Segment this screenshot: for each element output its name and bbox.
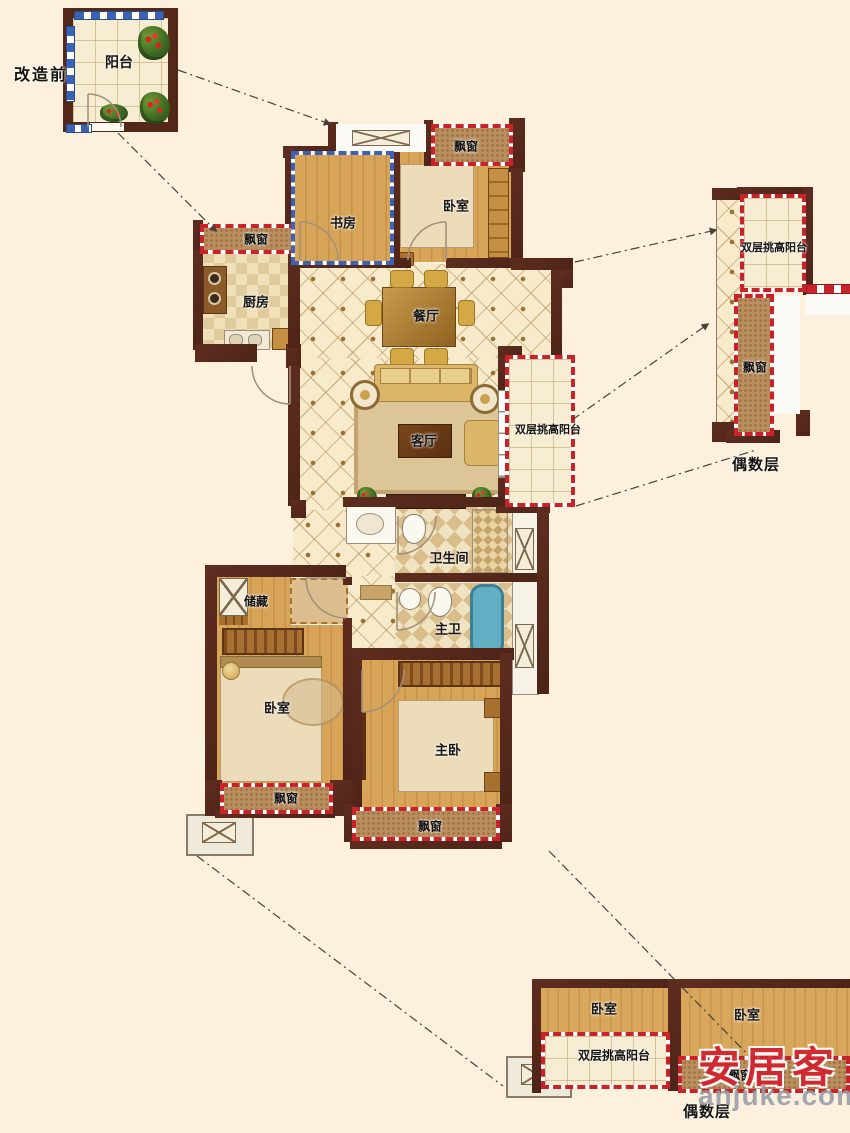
before-renovation-label: 改造前: [14, 61, 68, 85]
balcony-window-bottom: [66, 124, 92, 133]
balcony-before-label: 阳台: [105, 52, 133, 72]
bottom-bedroom-right-label: 卧室: [734, 1005, 760, 1024]
ac-ledge-x: [202, 822, 236, 843]
basin: [399, 588, 421, 610]
north-window-x: [352, 130, 410, 146]
wardrobe-master: [398, 661, 502, 687]
watermark-site: anjuke.com: [698, 1080, 850, 1112]
right-balcony-label: 双层挑高阳台: [741, 239, 807, 255]
living-label: 客厅: [411, 431, 437, 450]
duct-box: [515, 624, 534, 668]
bottom-balcony-label: 双层挑高阳台: [578, 1047, 650, 1064]
bay-west-label: 飘窗: [274, 790, 298, 807]
toilet: [402, 514, 426, 544]
right-unit-ledge: [774, 296, 800, 414]
side-table: [350, 380, 380, 410]
dining-chair: [424, 270, 448, 288]
bedroom-north-label: 卧室: [443, 196, 469, 215]
armchair: [464, 420, 502, 466]
plant-icon: [100, 104, 128, 122]
floorplan-canvas: 阳台 改造前: [0, 0, 850, 1133]
bedroom-north-wardrobe: [488, 168, 509, 258]
dining-label: 餐厅: [413, 306, 439, 325]
shower-area: [472, 509, 508, 573]
bottom-bedroom-left-label: 卧室: [591, 999, 617, 1018]
bay-master-label: 飘窗: [418, 818, 442, 835]
balcony-window-top: [74, 11, 164, 20]
even-floor-right-label: 偶数层: [732, 454, 780, 475]
bedside-lamp: [222, 662, 240, 680]
plant-icon: [140, 92, 170, 124]
stove-burner: [208, 292, 221, 305]
bay-kitchen-label: 飘窗: [244, 231, 268, 248]
floor-hatch: [290, 578, 348, 624]
right-unit-bay-extension: [806, 284, 850, 294]
balcony-door-gap: [90, 123, 124, 131]
bathroom-label: 卫生间: [429, 548, 468, 567]
dining-chair: [458, 300, 475, 326]
sofa-cushions: [380, 368, 472, 384]
right-bay-label: 飘窗: [743, 359, 767, 376]
wardrobe-west: [222, 628, 304, 655]
vanity-basin: [356, 513, 384, 535]
side-table: [470, 384, 500, 414]
masterbath-label: 主卫: [435, 619, 461, 638]
doormat: [360, 585, 392, 600]
duct-box: [515, 528, 534, 570]
plant-icon: [138, 26, 170, 60]
bedroom-west-label: 卧室: [264, 698, 290, 717]
dining-chair: [390, 270, 414, 288]
storage-shelf: [219, 616, 248, 625]
balcony-east-label: 双层挑高阳台: [515, 421, 581, 437]
stove-burner: [208, 272, 221, 285]
dining-chair: [365, 300, 382, 326]
master-bedroom-label: 主卧: [435, 740, 461, 759]
kitchen-label: 厨房: [243, 292, 269, 311]
toilet: [428, 587, 452, 617]
study-label: 书房: [330, 213, 356, 232]
study-converted-border: [291, 151, 394, 265]
round-rug: [282, 678, 344, 726]
storage-label: 储藏: [244, 593, 268, 610]
bathtub: [470, 584, 504, 656]
bay-north-label: 飘窗: [454, 138, 478, 155]
right-unit-ledge2: [806, 293, 850, 315]
